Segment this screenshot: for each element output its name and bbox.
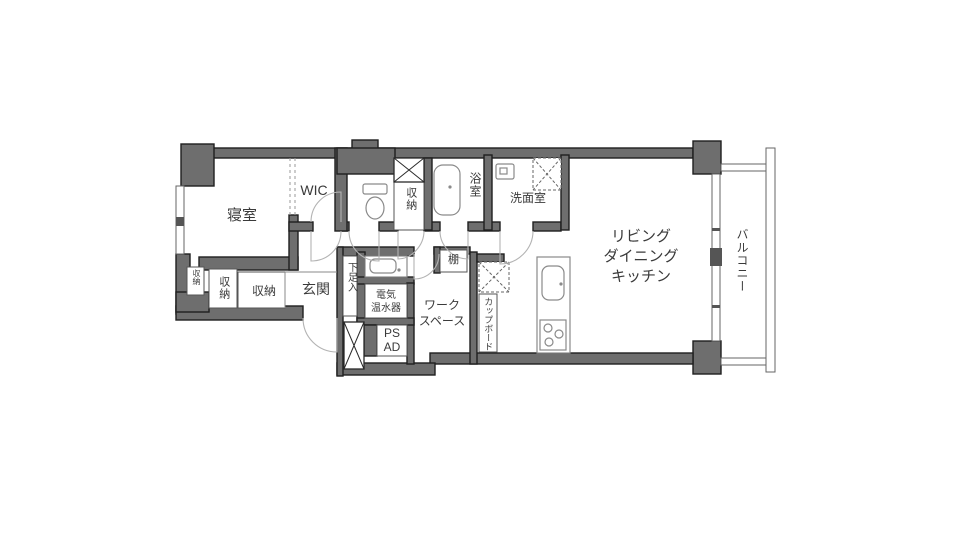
ldk-label-line2: ダイニング (580, 247, 702, 267)
ldk-label-line1: リビング (580, 227, 702, 247)
floor-plan-drawing (0, 0, 960, 540)
water-heater-label-line1: 電気 (362, 289, 410, 302)
meter-box-x-icon (344, 322, 364, 369)
balcony-label: バルコニー (734, 228, 749, 293)
washing-machine-area-icon (533, 158, 561, 190)
shelf-label: 棚 (441, 254, 466, 268)
kitchen-counter (537, 257, 570, 353)
workspace-label-line2: スペース (404, 313, 480, 329)
ldk-door-arc (500, 231, 533, 264)
front-door-arc (303, 318, 337, 352)
shaft-x-icon (394, 158, 424, 182)
bedroom-label: 寝室 (214, 207, 270, 226)
cupboard-label: カップボード (482, 297, 493, 351)
hall-storage-label: 収納 (403, 187, 417, 211)
corner-storage-label: 収納 (191, 269, 201, 285)
ldk-label-line3: キッチン (580, 267, 702, 287)
ldk-label: リビング ダイニング キッチン (580, 227, 702, 287)
pipe-space-label: PS (378, 326, 406, 340)
bathroom-label: 浴室 (467, 172, 482, 198)
kitchen-sink-icon (542, 266, 564, 300)
ps-ad-label: PS AD (378, 326, 406, 354)
water-heater-label: 電気 温水器 (362, 289, 410, 315)
air-duct-label: AD (378, 340, 406, 354)
bedroom-storage-label: 収納 (216, 276, 230, 300)
refrigerator-area-icon (479, 262, 509, 292)
washroom-label: 洗面室 (498, 191, 558, 206)
washbasin-icon (496, 164, 514, 179)
workspace-label: ワーク スペース (404, 297, 480, 329)
floor-plan: 寝室 WIC 収納 浴室 洗面室 リビング ダイニング キッチン バルコニー 玄… (0, 0, 960, 540)
wic-label: WIC (292, 182, 336, 200)
toilet-icon (363, 184, 387, 219)
bathtub-icon (434, 165, 460, 215)
workspace-label-line1: ワーク (404, 297, 480, 313)
shoe-cabinet-label: 下足入 (344, 262, 357, 292)
entrance-label: 玄関 (294, 281, 338, 299)
entrance-storage-label: 収納 (242, 284, 286, 299)
water-heater-label-line2: 温水器 (362, 302, 410, 315)
